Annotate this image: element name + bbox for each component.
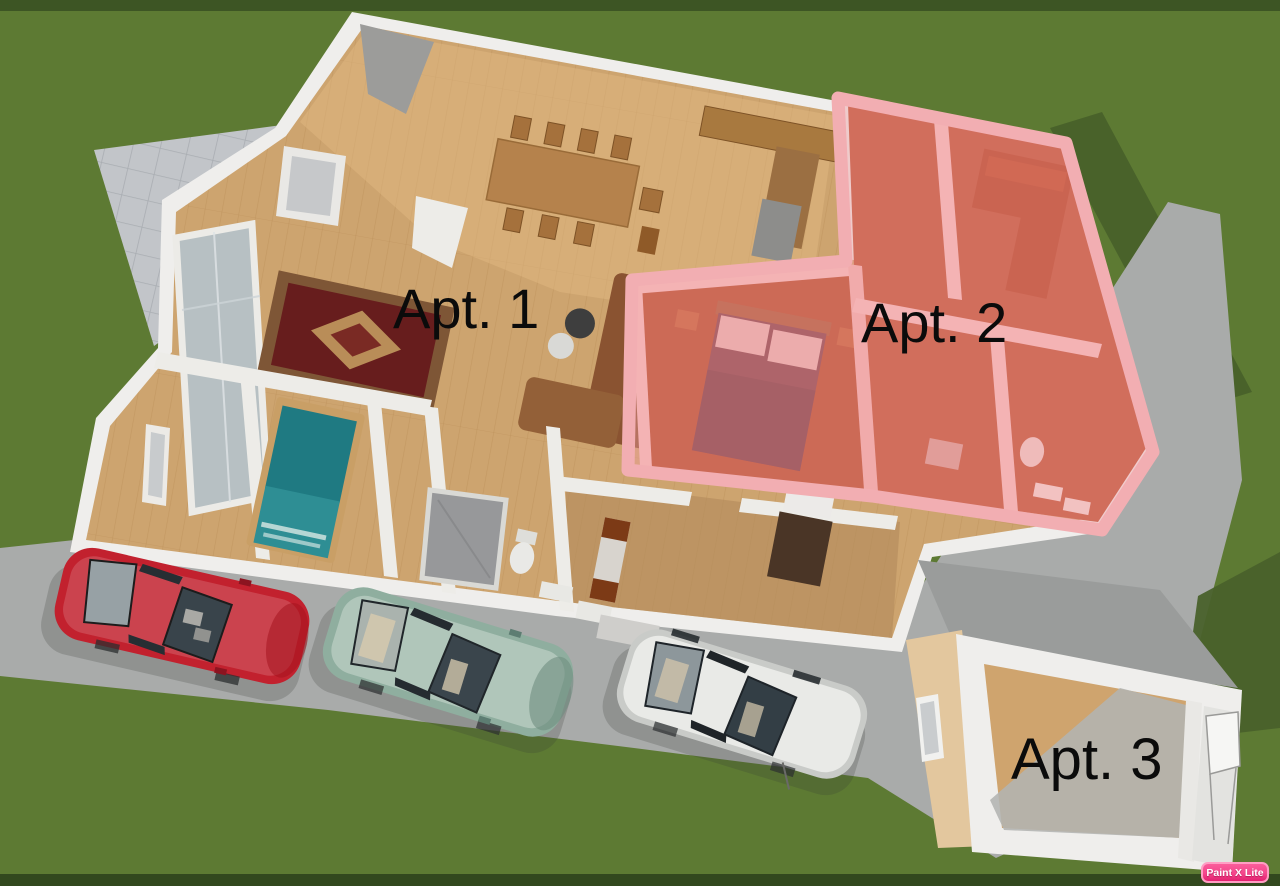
grass-dark-bottom-strip [0, 874, 1280, 886]
grass-dark-top-strip [0, 0, 1280, 11]
dining-chair [574, 222, 595, 247]
dining-chair [503, 208, 524, 233]
dining-chair [511, 116, 532, 141]
drafting-table [1206, 712, 1240, 774]
apt1-label: Apt. 1 [393, 281, 539, 337]
floorplan-render: Apt. 1 Apt. 2 Apt. 3 Paint X Lite [0, 0, 1280, 886]
entry-structure-floor [286, 156, 336, 216]
apt3-label: Apt. 3 [1011, 731, 1163, 789]
dining-chair [538, 215, 559, 240]
apt2-label: Apt. 2 [861, 295, 1007, 351]
dining-chair [639, 187, 663, 212]
dining-chair [577, 129, 598, 154]
dining-chair [611, 135, 632, 160]
watermark-badge: Paint X Lite [1201, 862, 1269, 883]
dining-chair [544, 122, 565, 147]
side-window-glass [148, 432, 165, 498]
